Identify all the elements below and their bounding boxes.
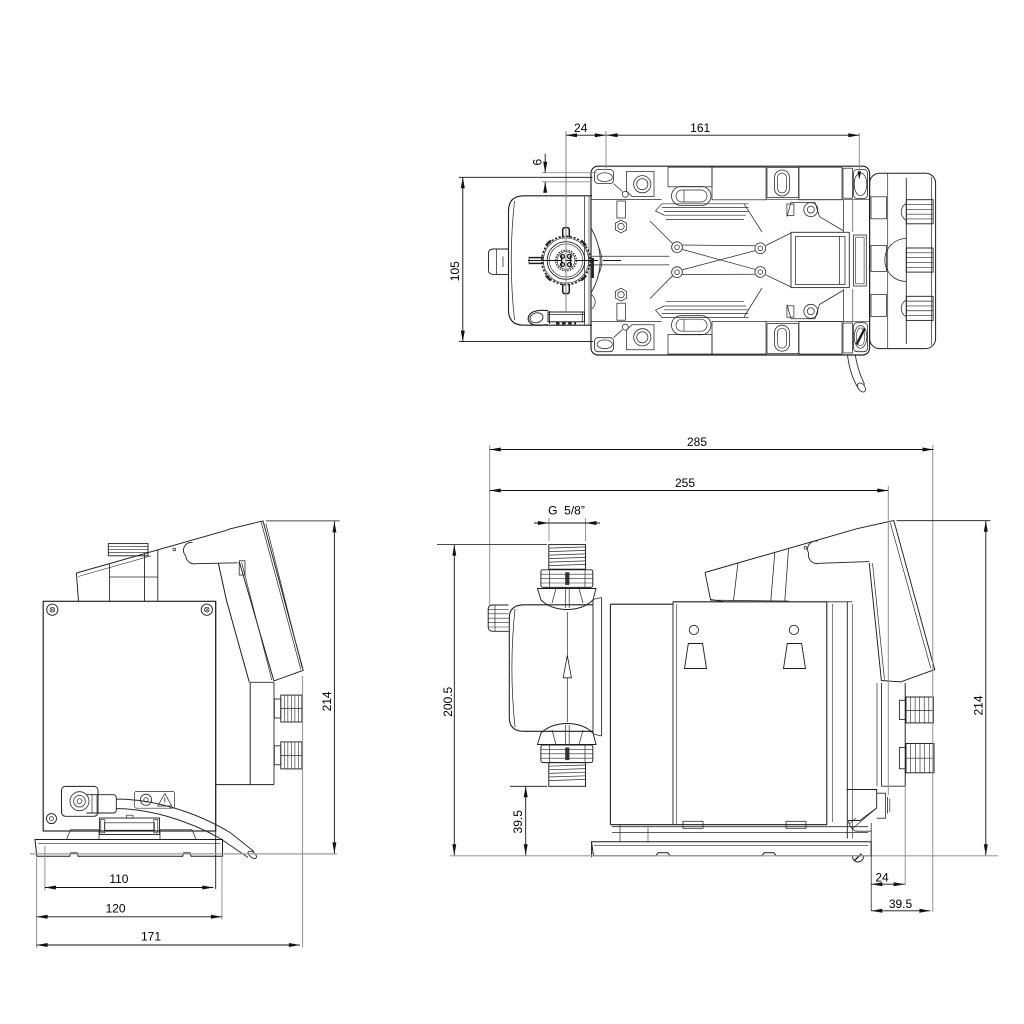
svg-text:24: 24 (574, 121, 588, 135)
svg-text:214: 214 (971, 695, 985, 715)
svg-text:171: 171 (141, 930, 161, 944)
svg-text:214: 214 (320, 691, 334, 711)
svg-text:105: 105 (448, 261, 462, 281)
svg-text:285: 285 (687, 435, 707, 449)
svg-text:39.5: 39.5 (511, 810, 525, 834)
svg-text:161: 161 (690, 121, 710, 135)
svg-text:110: 110 (109, 872, 128, 886)
svg-text:200.5: 200.5 (441, 686, 455, 716)
svg-text:255: 255 (675, 476, 695, 490)
svg-text:39.5: 39.5 (889, 897, 913, 911)
svg-text:G 5/8”: G 5/8” (548, 504, 585, 518)
svg-text:120: 120 (106, 901, 126, 915)
svg-text:6: 6 (530, 159, 544, 166)
svg-text:24: 24 (875, 870, 889, 884)
